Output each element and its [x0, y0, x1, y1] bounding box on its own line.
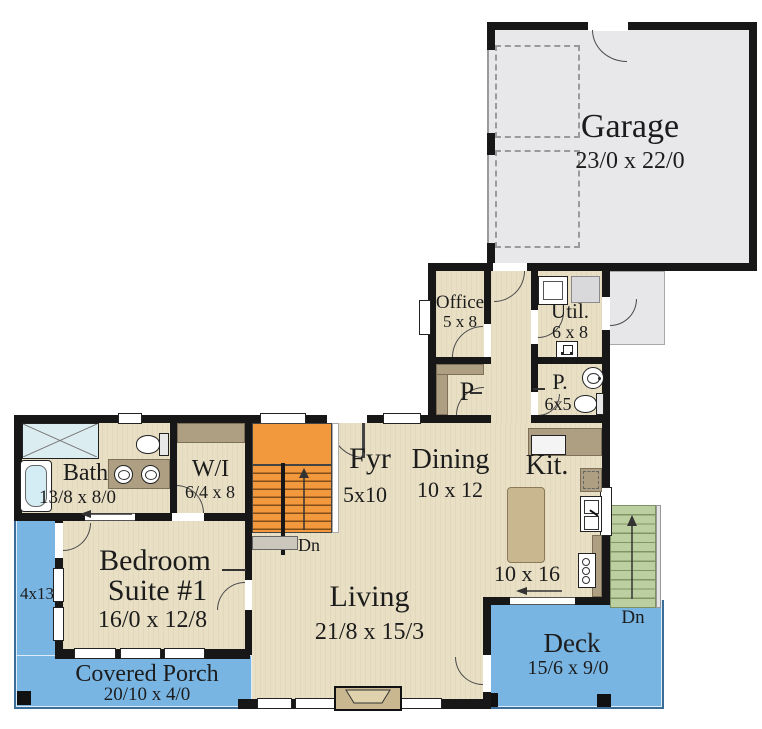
bedroom-window-bottom-3	[164, 648, 205, 659]
exterior-wall-top	[306, 415, 327, 423]
powder-leader-line	[533, 388, 545, 390]
walkin-door-gap	[172, 513, 204, 521]
office-window	[419, 300, 431, 335]
stair-treads	[252, 465, 332, 533]
living-deck-door-gap	[483, 655, 491, 692]
living-label: Living	[322, 582, 417, 613]
kitchen-label: Kit.	[516, 452, 578, 481]
utility-wall-bottom	[531, 357, 602, 364]
hall-garage-door-gap	[493, 263, 527, 271]
deck-post-mid	[597, 694, 611, 707]
deck-stair-rail	[656, 505, 661, 608]
pantry-leader-line	[470, 392, 482, 394]
deck-stairs-up-arrow-icon	[622, 515, 642, 599]
bath-wall-bottom	[14, 513, 85, 521]
office-label: Office	[432, 293, 488, 312]
powder-label: P.	[543, 371, 577, 393]
exterior-wall-top	[142, 415, 260, 423]
utility-door-gap	[531, 310, 538, 344]
bedroom-leader-line	[222, 569, 246, 571]
kitchen-sink-icon	[580, 496, 602, 532]
garage-label: Garage	[560, 110, 700, 145]
utility-dims: 6 x 8	[540, 323, 600, 341]
bedroom-label-line1: Bedroom	[90, 546, 220, 577]
bath-vanity	[108, 459, 170, 489]
side-porch-dims: 4x13	[16, 585, 58, 602]
walkin-wall-right	[245, 415, 252, 521]
bedroom-window-bottom-2	[120, 648, 161, 659]
office-pantry-wall	[428, 357, 491, 364]
powder-toilet-bowl-icon	[574, 395, 597, 413]
bedroom-label-line2: Suite #1	[95, 576, 220, 607]
dining-dims: 10 x 12	[405, 479, 495, 501]
kitchen-slider-arrow-icon	[516, 586, 562, 596]
covered-porch-dims: 20/10 x 4/0	[94, 685, 200, 704]
porch-bedroom-door-gap	[55, 523, 63, 558]
foyer-dims: 5x10	[330, 484, 400, 506]
kitchen-counter-corner	[580, 468, 602, 492]
stair-up-arrow-icon	[295, 468, 313, 530]
powder-sink-icon	[582, 367, 604, 389]
garage-wall-post	[487, 22, 495, 50]
porch-post	[17, 691, 31, 705]
front-door-gap	[327, 415, 367, 423]
deck-label: Deck	[540, 630, 604, 658]
bedroom-dims: 16/0 x 12/8	[86, 608, 219, 632]
kitchen-island	[507, 487, 545, 563]
bath-pocket-door-arrow-icon	[80, 509, 132, 519]
powder-wall-bottom	[531, 415, 610, 423]
living-window-3	[399, 698, 442, 709]
powder-door-gap	[531, 392, 538, 415]
pantry-shelves-top	[436, 364, 484, 375]
office-dims: 5 x 8	[432, 313, 488, 330]
kitchen-dims: 10 x 16	[485, 563, 569, 585]
exterior-wall-top	[14, 415, 118, 423]
powder-dims: 6x5	[540, 395, 576, 413]
bath-toilet-tank	[159, 433, 169, 456]
deck-stairs-down-label: Dn	[615, 608, 651, 627]
kitchen-wall-bottom	[575, 597, 610, 605]
living-wall-bottom	[238, 699, 257, 709]
covered-porch-label: Covered Porch	[68, 662, 226, 686]
living-window-2	[295, 698, 336, 709]
bath-wall-bottom	[204, 513, 250, 521]
dining-label: Dining	[398, 446, 503, 475]
bedroom-window-left-2	[53, 607, 64, 641]
bedroom-door-gap	[245, 580, 252, 610]
fireplace-icon	[334, 686, 402, 711]
bath-toilet-bowl-icon	[136, 435, 160, 454]
foyer-window-right	[383, 413, 421, 424]
exterior-wall-top	[367, 415, 383, 423]
living-window-1	[257, 698, 292, 709]
pantry-wall-bottom	[428, 415, 491, 423]
walkin-shelves	[177, 423, 245, 443]
walkin-dims: 6/4 x 8	[176, 483, 244, 501]
range-icon	[578, 553, 596, 588]
bedroom-window-bottom-1	[74, 648, 116, 659]
garage-wall-right	[749, 22, 757, 271]
stair-edge-strip	[332, 423, 339, 533]
water-heater-icon	[556, 341, 578, 358]
powder-toilet-tank	[596, 393, 604, 415]
bath-dims: 13/8 x 8/0	[20, 488, 135, 507]
foyer-label: Fyr	[338, 444, 402, 475]
deck-dims: 15/6 x 9/0	[522, 658, 614, 678]
bath-window	[118, 413, 142, 424]
stair-down-label: Dn	[292, 536, 326, 554]
utility-label: Util.	[540, 301, 600, 322]
wing-wall-left	[428, 263, 436, 423]
utility-exterior-door-gap	[602, 297, 610, 330]
shower-icon	[22, 423, 99, 459]
kitchen-slider-gap	[510, 597, 575, 605]
walkin-label: W/I	[183, 457, 238, 481]
stair-landing	[252, 423, 332, 465]
living-deck-wall	[483, 597, 491, 709]
bath-wall-bottom	[135, 513, 172, 521]
floor-plan: Garage 23/0 x 22/0 Office 5 x 8 Util. 6 …	[0, 0, 762, 729]
bath-label: Bath	[58, 461, 113, 485]
garage-dims: 23/0 x 22/0	[560, 149, 700, 173]
exterior-wall-top	[421, 415, 436, 423]
living-dims: 21/8 x 15/3	[303, 620, 436, 644]
garage-wall-post	[487, 133, 495, 155]
